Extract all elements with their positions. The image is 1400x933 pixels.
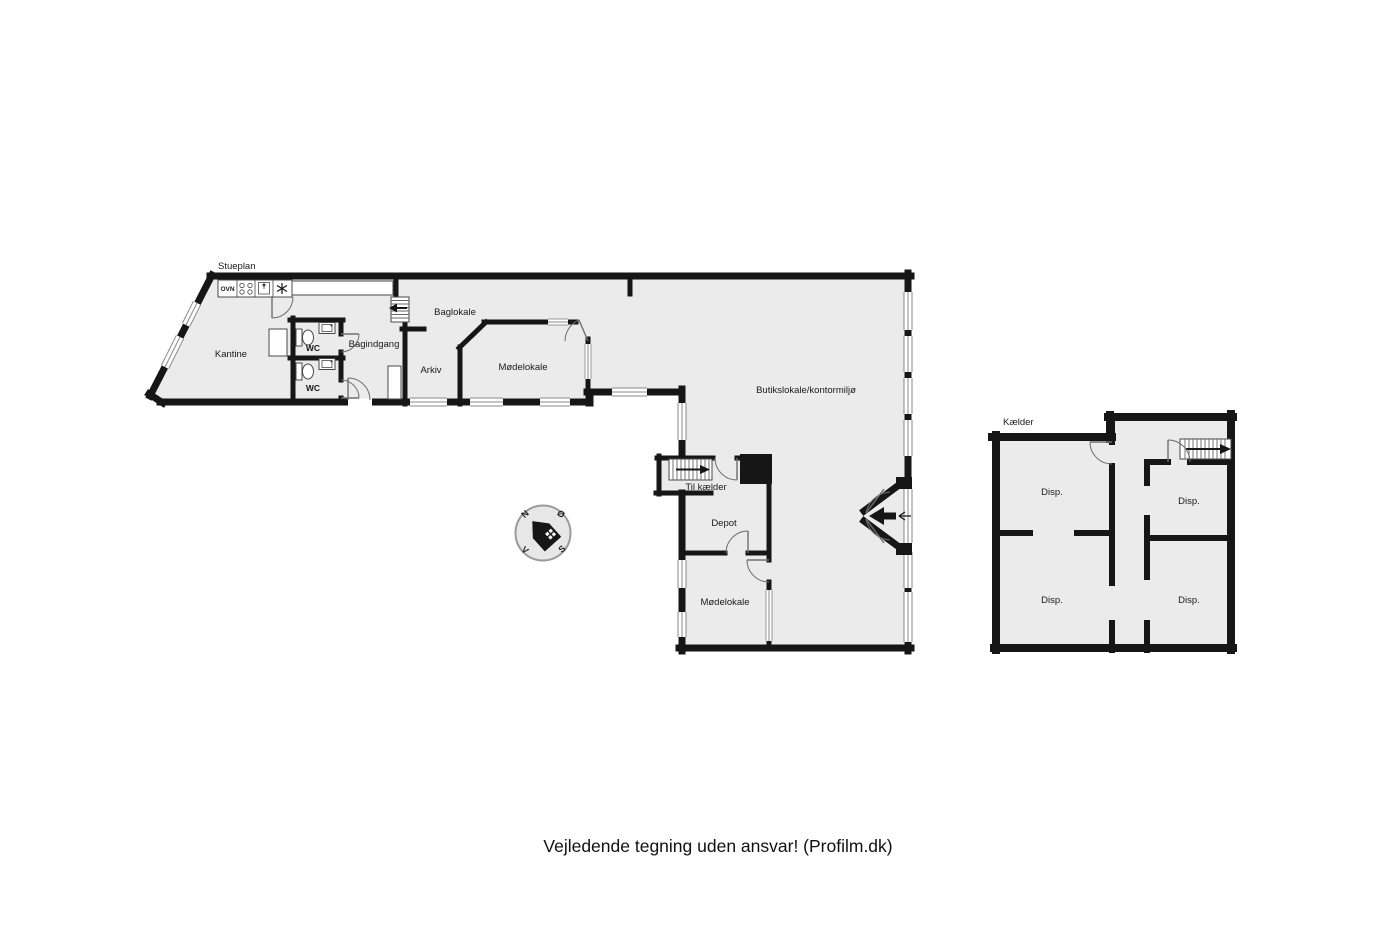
room-label-baglokale: Baglokale: [434, 307, 476, 318]
room-label-wc2: WC: [306, 383, 320, 393]
disclaimer-text: Vejledende tegning uden ansvar! (Profilm…: [543, 836, 892, 856]
arkiv-closet: [388, 366, 401, 399]
room-label-moedelokale-1: Mødelokale: [498, 362, 547, 373]
room-label-disp-2: Disp.: [1178, 496, 1200, 507]
stairs-icon: [669, 459, 712, 480]
kitchen-counter: OVN: [218, 280, 393, 297]
stairs-icon: [1180, 439, 1231, 459]
room-label-disp-1: Disp.: [1041, 487, 1063, 498]
room-label-til-kaelder: Til kælder: [685, 482, 726, 493]
room-label-arkiv: Arkiv: [420, 365, 441, 376]
stairs-icon: [389, 297, 409, 322]
room-label-kantine: Kantine: [215, 349, 247, 360]
washbasin-icon: [319, 323, 335, 334]
room-label-moedelokale-2: Mødelokale: [700, 597, 749, 608]
washbasin-icon: [319, 359, 335, 370]
room-label-depot: Depot: [711, 518, 737, 529]
room-label-disp-4: Disp.: [1178, 595, 1200, 606]
kantine-table: [269, 329, 287, 356]
stueplan-title: Stueplan: [218, 261, 256, 272]
oven-label: OVN: [220, 286, 234, 293]
stueplan-plan: OVN Stuep: [149, 261, 912, 651]
kaelder-title: Kælder: [1003, 417, 1034, 428]
room-label-disp-3: Disp.: [1041, 595, 1063, 606]
room-label-butikslokale: Butikslokale/kontormiljø: [756, 385, 856, 396]
floorplan-drawing: OVN Stuep: [0, 0, 1400, 933]
toilet-icon: [296, 363, 314, 380]
stueplan-floor: [150, 276, 908, 648]
room-label-bagindgang: Bagindgang: [349, 339, 400, 350]
floorplan-page: OVN Stuep: [0, 0, 1400, 933]
room-label-wc1: WC: [306, 343, 320, 353]
compass-rose: N Ø S V: [516, 506, 571, 561]
kaelder-plan: Kælder Disp. Disp. Disp. Disp.: [992, 414, 1233, 650]
